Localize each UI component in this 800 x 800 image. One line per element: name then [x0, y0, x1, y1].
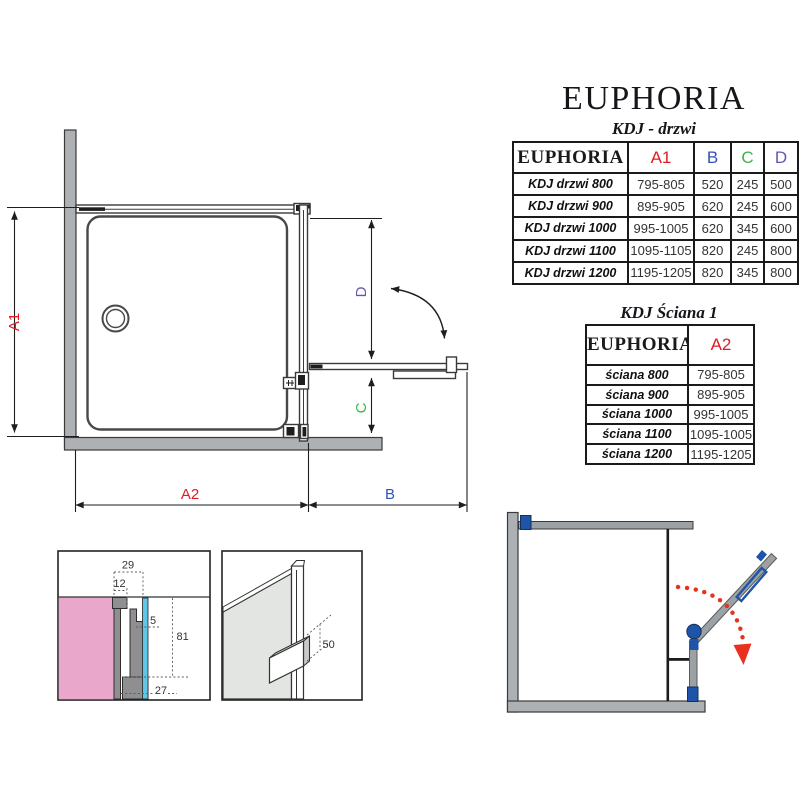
dim-c: C	[353, 378, 372, 433]
cell: 245	[731, 240, 764, 262]
shower-tray	[88, 217, 288, 430]
door-hinge-blue	[687, 624, 701, 638]
side-glass-line	[667, 529, 670, 701]
dim-label-b: B	[385, 486, 395, 503]
title-block: EUPHORIA KDJ - drzwi	[508, 82, 800, 139]
cell: 800	[764, 240, 798, 262]
table-row: ściana 1100 1095-1005	[586, 424, 754, 444]
table-row: KDJ drzwi 800 795-805 520 245 500	[513, 173, 798, 195]
cell: 820	[694, 240, 731, 262]
cell: 245	[731, 173, 764, 195]
cell: 600	[764, 217, 798, 239]
cell: 620	[694, 217, 731, 239]
cell: KDJ drzwi 800	[513, 173, 628, 195]
side-view	[508, 513, 777, 713]
cell: 995-1005	[688, 405, 754, 425]
dim-label-27: 27	[155, 685, 167, 697]
cell: KDJ drzwi 1000	[513, 217, 628, 239]
door-dimensions-table: EUPHORIA A1 B C D KDJ drzwi 800 795-805 …	[512, 141, 799, 285]
dim-label-c: C	[353, 402, 370, 413]
wall-section-pink	[59, 598, 114, 700]
col-header-a1: A1	[628, 142, 694, 173]
cell: 345	[731, 217, 764, 239]
plan-wall-left	[65, 130, 77, 447]
table-row: KDJ drzwi 1200 1195-1205 820 345 800	[513, 262, 798, 284]
detail-wall-profile: 29 12 5 81 27	[58, 551, 210, 700]
dim-label-a1: A1	[6, 313, 23, 331]
cell: ściana 1200	[586, 444, 688, 464]
cell: 820	[694, 262, 731, 284]
cell: KDJ drzwi 1200	[513, 262, 628, 284]
table-row: ściana 1200 1195-1205	[586, 444, 754, 464]
dim-label-d: D	[353, 286, 370, 297]
detail-glass-handle: 50	[222, 551, 362, 700]
wall-dimensions-table: EUPHORIA A2 ściana 800 795-805 ściana 90…	[585, 324, 755, 465]
cell: 800	[764, 262, 798, 284]
col-header-a2: A2	[688, 325, 754, 365]
cell: 795-805	[688, 365, 754, 385]
glass-section	[143, 598, 149, 699]
cell: 795-805	[628, 173, 694, 195]
cell: 1195-1205	[688, 444, 754, 464]
cell: 600	[764, 195, 798, 217]
cell: KDJ drzwi 900	[513, 195, 628, 217]
wall-table-title: KDJ Ściana 1	[585, 303, 753, 323]
door-knob	[447, 357, 457, 373]
side-wall-left	[508, 513, 519, 713]
cell: ściana 1000	[586, 405, 688, 425]
side-fixed-panel	[519, 522, 694, 530]
dim-label-81: 81	[177, 631, 189, 643]
cell: 1095-1005	[688, 424, 754, 444]
table-row: KDJ drzwi 900 895-905 620 245 600	[513, 195, 798, 217]
cell: 620	[694, 195, 731, 217]
dim-label-29: 29	[122, 560, 134, 572]
table-product-header: EUPHORIA	[586, 325, 688, 365]
col-header-c: C	[731, 142, 764, 173]
cell: KDJ drzwi 1100	[513, 240, 628, 262]
col-header-d: D	[764, 142, 798, 173]
open-door	[310, 357, 468, 379]
door-tilted-bar	[689, 554, 776, 647]
table-row: ściana 1000 995-1005	[586, 405, 754, 425]
cell: ściana 1100	[586, 424, 688, 444]
spec-sheet-page: A1 A2 B D C	[0, 0, 800, 800]
table-header-row: EUPHORIA A2	[586, 325, 754, 365]
cell: 895-905	[688, 385, 754, 405]
cell: ściana 900	[586, 385, 688, 405]
page-title: EUPHORIA	[508, 82, 800, 116]
fixed-panel	[76, 204, 310, 215]
dim-label-a2: A2	[181, 486, 199, 503]
wall-profile-bar	[114, 597, 121, 699]
wall-bracket-blue	[521, 516, 532, 530]
plan-view: A1 A2 B D C	[6, 130, 468, 512]
table-row: ściana 800 795-805	[586, 365, 754, 385]
swing-arrow-icon	[391, 289, 445, 339]
table-row: ściana 900 895-905	[586, 385, 754, 405]
dim-label-50: 50	[323, 639, 335, 651]
cell: 995-1005	[628, 217, 694, 239]
dim-a2: A2	[76, 443, 309, 512]
cell: ściana 800	[586, 365, 688, 385]
cell: 895-905	[628, 195, 694, 217]
edge-profile	[292, 561, 305, 700]
dim-label-12: 12	[113, 578, 125, 590]
table-product-header: EUPHORIA	[513, 142, 628, 173]
plan-wall-bottom	[65, 438, 383, 451]
dim-d: D	[310, 219, 382, 360]
door-swing-arrowhead	[734, 644, 752, 666]
wall-profile-flange	[113, 598, 128, 609]
table-row: KDJ drzwi 1100 1095-1105 820 245 800	[513, 240, 798, 262]
cell: 245	[731, 195, 764, 217]
col-header-b: B	[694, 142, 731, 173]
cell: 520	[694, 173, 731, 195]
side-wall-bottom	[508, 701, 706, 712]
cell: 345	[731, 262, 764, 284]
door-foot-blue	[688, 687, 699, 702]
door-hinge-blue-lower	[690, 639, 699, 650]
table-row: KDJ drzwi 1000 995-1005 620 345 600	[513, 217, 798, 239]
cell: 1095-1105	[628, 240, 694, 262]
table-header-row: EUPHORIA A1 B C D	[513, 142, 798, 173]
cell: 1195-1205	[628, 262, 694, 284]
dim-label-5: 5	[150, 615, 156, 627]
cell: 500	[764, 173, 798, 195]
page-subtitle: KDJ - drzwi	[508, 119, 800, 139]
